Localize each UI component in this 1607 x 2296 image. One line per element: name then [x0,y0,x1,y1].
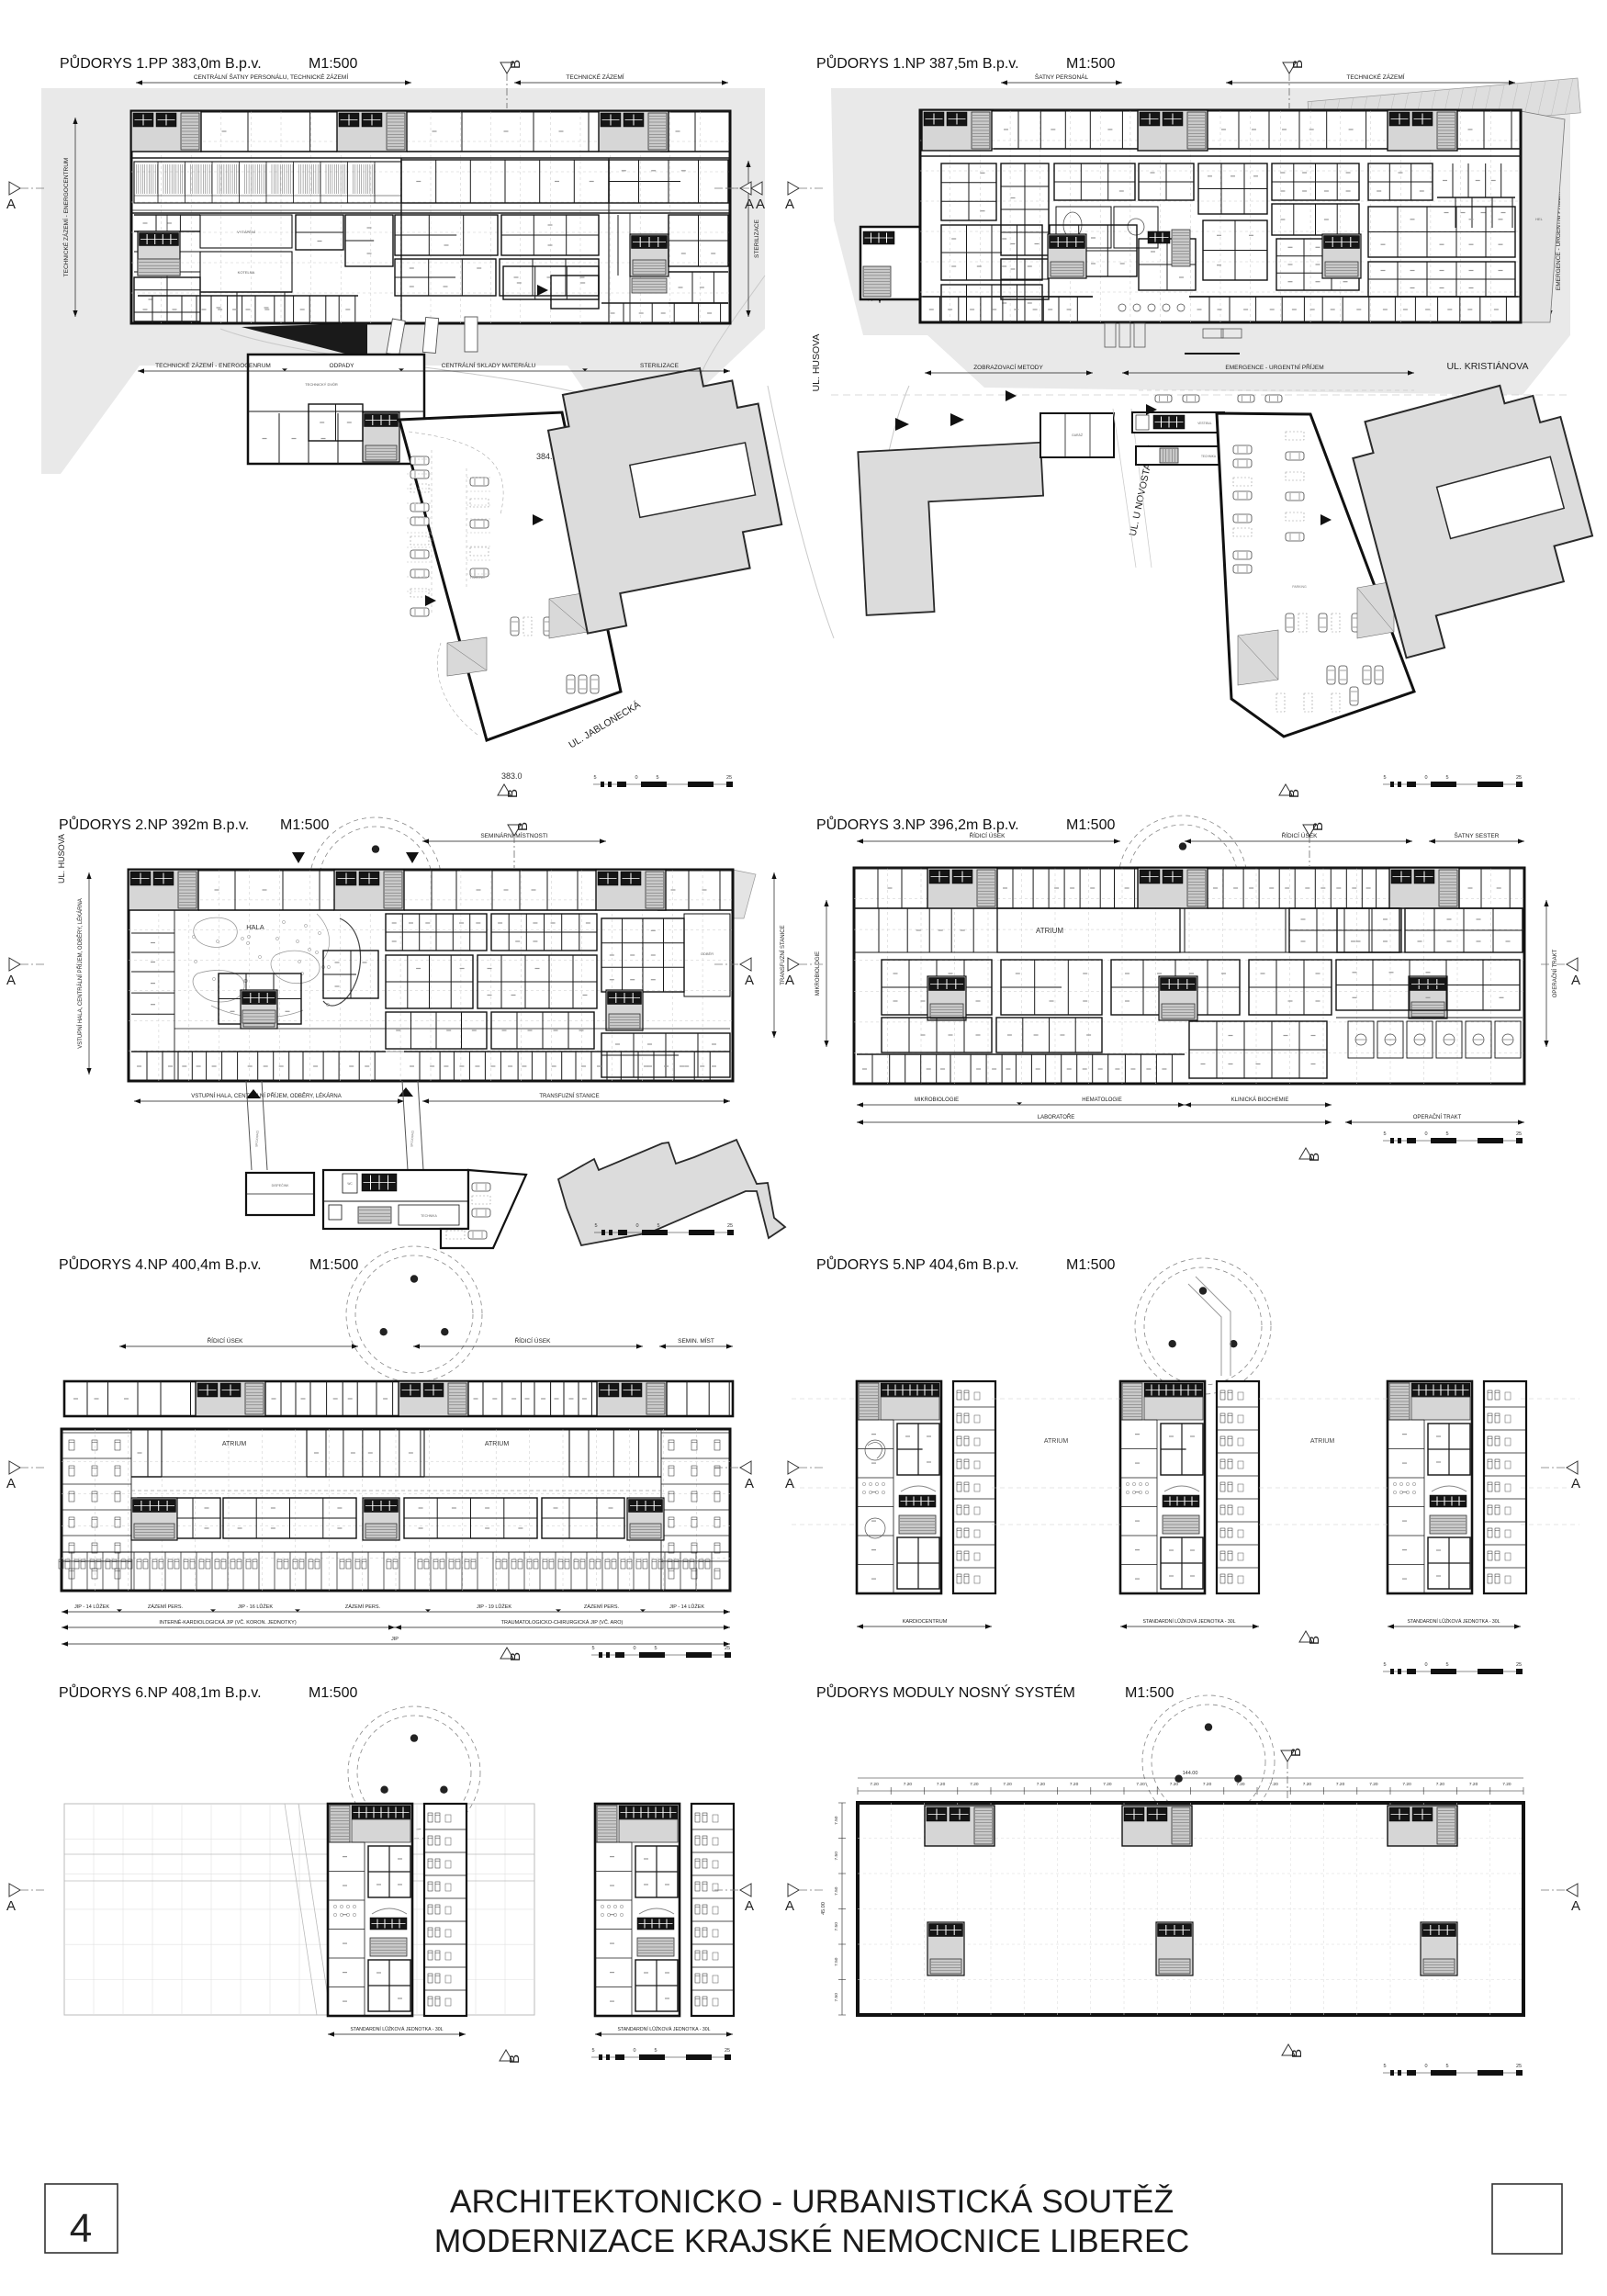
svg-text:0: 0 [1424,2064,1427,2069]
svg-text:ZÁZEMÍ PERS.: ZÁZEMÍ PERS. [148,1604,184,1610]
svg-text:JIP - 16 LŮŽEK: JIP - 16 LŮŽEK [238,1603,273,1610]
svg-text:JIP - 19 LŮŽEK: JIP - 19 LŮŽEK [477,1603,511,1610]
svg-text:7.20: 7.20 [1236,1782,1245,1787]
svg-text:ATRIUM: ATRIUM [1036,927,1063,935]
svg-text:INTERNĚ-KARDIOLOGICKÁ JIP (VČ.: INTERNĚ-KARDIOLOGICKÁ JIP (VČ. KORON. JE… [159,1618,297,1626]
svg-text:EMERGENCE - URGENTNÍ PŘÍJEM: EMERGENCE - URGENTNÍ PŘÍJEM [1225,363,1323,371]
svg-text:HEMATOLOGIE: HEMATOLOGIE [1082,1097,1121,1103]
svg-text:7.20: 7.20 [1303,1782,1312,1787]
svg-text:A: A [6,1476,16,1491]
svg-text:ŠATNY SESTER: ŠATNY SESTER [1455,831,1500,839]
svg-text:B: B [1289,2049,1305,2058]
svg-text:M1:500: M1:500 [309,1685,357,1701]
svg-text:7.20: 7.20 [970,1782,979,1787]
svg-text:PŮDORYS 1.NP 387,5m B.p.v.: PŮDORYS 1.NP 387,5m B.p.v. [816,54,1019,72]
svg-text:A: A [745,1898,754,1914]
svg-text:M1:500: M1:500 [1125,1685,1174,1701]
svg-text:4: 4 [70,2206,92,2251]
svg-text:ZÁZEMÍ PERS.: ZÁZEMÍ PERS. [584,1604,620,1610]
svg-text:7.20: 7.20 [1170,1782,1179,1787]
svg-text:A: A [785,1476,794,1491]
svg-text:A: A [1571,1898,1580,1914]
svg-text:ZÁZEMÍ PERS.: ZÁZEMÍ PERS. [345,1604,381,1610]
svg-text:UL. HUSOVA: UL. HUSOVA [57,834,66,884]
svg-text:TRANSFUZNÍ STANICE: TRANSFUZNÍ STANICE [539,1093,599,1099]
svg-text:ŠATNY PERSONÁL: ŠATNY PERSONÁL [1035,73,1089,81]
svg-text:VESTIBUL: VESTIBUL [1197,422,1212,425]
svg-text:PARKING: PARKING [1292,585,1307,589]
svg-text:VYTÁPĚNÍ: VYTÁPĚNÍ [237,230,256,234]
svg-text:25: 25 [725,1646,730,1651]
svg-text:7.50: 7.50 [834,1886,839,1896]
svg-text:B: B [508,60,523,69]
svg-text:ŘÍDICÍ ÚSEK: ŘÍDICÍ ÚSEK [969,831,1006,839]
svg-text:5: 5 [591,1646,594,1651]
svg-text:7.20: 7.20 [904,1782,913,1787]
svg-text:TECHNICKÉ ZÁZEMÍ - ENERGOCENTR: TECHNICKÉ ZÁZEMÍ - ENERGOCENTRUM [62,158,70,277]
svg-text:5: 5 [1383,2064,1386,2069]
svg-text:TECHNIKA: TECHNIKA [421,1214,437,1218]
svg-text:TECHNIKA: TECHNIKA [1201,455,1217,458]
svg-text:TRAUMATOLOGICKO-CHIRURGICKÁ JI: TRAUMATOLOGICKO-CHIRURGICKÁ JIP (VČ. ARO… [501,1619,624,1626]
svg-text:45.00: 45.00 [821,1902,826,1915]
svg-text:ŘÍDICÍ ÚSEK: ŘÍDICÍ ÚSEK [1281,831,1318,839]
svg-text:B: B [1310,822,1326,831]
svg-text:25: 25 [1516,1662,1522,1668]
svg-text:JIP: JIP [391,1637,399,1642]
svg-text:7.50: 7.50 [834,1851,839,1861]
svg-text:SEMIN. MÍST: SEMIN. MÍST [678,1336,714,1345]
svg-text:STANDARDNÍ LŮŽKOVÁ JEDNOTKA -: STANDARDNÍ LŮŽKOVÁ JEDNOTKA - 30L [617,2025,710,2032]
svg-text:ATRIUM: ATRIUM [1310,1438,1334,1445]
svg-text:PŮDORYS 5.NP 404,6m B.p.v.: PŮDORYS 5.NP 404,6m B.p.v. [816,1255,1019,1273]
svg-text:ODPADY: ODPADY [330,363,355,369]
svg-text:5: 5 [1445,1662,1448,1668]
svg-text:ATRIUM: ATRIUM [485,1441,509,1447]
svg-text:PŮDORYS 6.NP 408,1m B.p.v.: PŮDORYS 6.NP 408,1m B.p.v. [59,1683,262,1701]
svg-text:A: A [6,973,16,988]
svg-text:KOTELNA: KOTELNA [238,270,255,275]
svg-text:MIKROBIOLOGIE: MIKROBIOLOGIE [915,1097,959,1103]
svg-text:A: A [745,1476,754,1491]
svg-text:A: A [6,1898,16,1914]
svg-text:PŮDORYS 3.NP 396,2m B.p.v.: PŮDORYS 3.NP 396,2m B.p.v. [816,816,1019,833]
svg-text:7.20: 7.20 [1037,1782,1046,1787]
svg-text:LABORATOŘE: LABORATOŘE [1038,1113,1074,1120]
svg-text:M1:500: M1:500 [1066,817,1115,833]
svg-text:7.50: 7.50 [834,1957,839,1966]
svg-text:0: 0 [1424,775,1427,781]
svg-text:A: A [6,197,16,212]
svg-text:CENTRÁLNÍ SKLADY MATERIÁLU: CENTRÁLNÍ SKLADY MATERIÁLU [442,361,536,369]
svg-text:25: 25 [1516,775,1522,781]
svg-text:7.20: 7.20 [1269,1782,1278,1787]
svg-text:M1:500: M1:500 [309,1257,358,1273]
svg-text:B: B [1290,60,1306,69]
svg-text:5: 5 [657,1223,659,1229]
svg-text:25: 25 [727,1223,733,1229]
svg-text:B: B [1307,1153,1322,1162]
svg-text:5: 5 [1445,775,1448,781]
svg-text:TECHNICKÉ ZÁZEMÍ: TECHNICKÉ ZÁZEMÍ [566,73,624,81]
svg-text:DISPEČINK: DISPEČINK [272,1183,290,1187]
svg-text:0: 0 [635,775,637,781]
svg-text:0: 0 [635,1223,638,1229]
svg-text:A: A [1571,1476,1580,1491]
svg-text:M1:500: M1:500 [1066,1257,1115,1273]
svg-text:7.20: 7.20 [1070,1782,1079,1787]
svg-text:M1:500: M1:500 [280,817,329,833]
svg-text:25: 25 [1516,1131,1522,1137]
svg-text:5: 5 [593,775,596,781]
svg-text:KARDIOCENTRUM: KARDIOCENTRUM [903,1619,948,1625]
svg-text:7.20: 7.20 [1369,1782,1378,1787]
svg-text:A: A [745,197,754,212]
svg-text:STERILIZACE: STERILIZACE [640,363,680,369]
svg-text:STANDARDNÍ LŮŽKOVÁ JEDNOTKA -: STANDARDNÍ LŮŽKOVÁ JEDNOTKA - 30L [350,2025,443,2032]
svg-text:A: A [1571,973,1580,988]
svg-text:ŘÍDICÍ ÚSEK: ŘÍDICÍ ÚSEK [207,1336,243,1345]
svg-text:5: 5 [1445,2064,1448,2069]
svg-text:B: B [508,1652,523,1661]
svg-text:TECHNICKÝ DVŮR: TECHNICKÝ DVŮR [305,382,338,387]
svg-text:PARKING: PARKING [470,576,485,580]
svg-text:144.00: 144.00 [1183,1771,1198,1776]
svg-text:M1:500: M1:500 [1066,56,1115,72]
svg-text:7.20: 7.20 [1136,1782,1145,1787]
svg-text:7.50: 7.50 [834,1922,839,1931]
svg-text:5: 5 [591,2048,594,2054]
svg-text:5: 5 [1383,1131,1386,1137]
svg-text:ODBĚR: ODBĚR [701,951,714,956]
svg-text:B: B [515,822,531,831]
svg-text:PŮDORYS 1.PP 383,0m B.p.v.: PŮDORYS 1.PP 383,0m B.p.v. [60,54,262,72]
svg-text:M1:500: M1:500 [309,56,357,72]
svg-text:25: 25 [1516,2064,1522,2069]
svg-text:UL. HUSOVA: UL. HUSOVA [811,334,822,392]
svg-text:STANDARDNÍ LŮŽKOVÁ JEDNOTKA -: STANDARDNÍ LŮŽKOVÁ JEDNOTKA - 30L [1407,1617,1500,1625]
svg-text:WC: WC [347,1182,353,1186]
svg-text:B: B [1307,1636,1322,1645]
svg-text:25: 25 [725,2048,730,2054]
svg-text:MIKROBIOLOGIE: MIKROBIOLOGIE [815,951,821,996]
svg-text:0: 0 [633,1646,635,1651]
svg-text:ŘÍDICÍ ÚSEK: ŘÍDICÍ ÚSEK [514,1336,551,1345]
svg-text:A: A [785,1898,794,1914]
svg-text:7.20: 7.20 [1402,1782,1411,1787]
svg-text:OPERAČNÍ TRAKT: OPERAČNÍ TRAKT [1552,949,1558,997]
svg-text:STANDARDNÍ LŮŽKOVÁ JEDNOTKA -: STANDARDNÍ LŮŽKOVÁ JEDNOTKA - 30L [1142,1617,1235,1625]
svg-text:ZOBRAZOVACÍ METODY: ZOBRAZOVACÍ METODY [973,363,1043,371]
svg-text:A: A [785,973,794,988]
svg-text:TECHNICKÉ ZÁZEMÍ - ENERGOCENRU: TECHNICKÉ ZÁZEMÍ - ENERGOCENRUM [155,361,271,369]
svg-text:5: 5 [656,775,658,781]
svg-text:B: B [1288,1748,1304,1757]
svg-text:7.20: 7.20 [1436,1782,1445,1787]
svg-text:PŮDORYS 2.NP 392m B.p.v.: PŮDORYS 2.NP 392m B.p.v. [59,816,249,833]
svg-text:KLINICKÁ BIOCHEMIE: KLINICKÁ BIOCHEMIE [1231,1097,1289,1103]
svg-text:JIP - 14 LŮŽEK: JIP - 14 LŮŽEK [74,1603,109,1610]
svg-text:25: 25 [726,775,732,781]
svg-text:383.0: 383.0 [501,771,523,781]
svg-text:PŮDORYS 4.NP 400,4m B.p.v.: PŮDORYS 4.NP 400,4m B.p.v. [59,1255,262,1273]
svg-text:7.50: 7.50 [834,1993,839,2002]
svg-text:HEL: HEL [1535,217,1544,221]
svg-text:5: 5 [654,2048,657,2054]
svg-text:OPERAČNÍ TRAKT: OPERAČNÍ TRAKT [1413,1114,1462,1120]
svg-text:A: A [785,197,794,212]
svg-text:VSTUPNÍ HALA, CENTRÁLNÍ PŘÍJEM: VSTUPNÍ HALA, CENTRÁLNÍ PŘÍJEM, ODBĚRY, … [191,1092,342,1099]
svg-text:0: 0 [633,2048,635,2054]
svg-text:5: 5 [1383,1662,1386,1668]
svg-text:7.20: 7.20 [1336,1782,1345,1787]
svg-text:B: B [505,789,521,798]
svg-text:PŮDORYS MODULY NOSNÝ SYSTÉM: PŮDORYS MODULY NOSNÝ SYSTÉM [816,1683,1075,1701]
svg-text:TECHNICKÉ ZÁZEMÍ: TECHNICKÉ ZÁZEMÍ [1346,73,1404,81]
svg-text:5: 5 [654,1646,657,1651]
svg-text:B: B [507,2054,523,2064]
svg-text:VSTUPNÍ HALA, CENTRÁLNÍ PŘÍJEM: VSTUPNÍ HALA, CENTRÁLNÍ PŘÍJEM, ODBĚRY, … [76,898,84,1049]
svg-text:STERILIZACE: STERILIZACE [754,219,760,258]
svg-text:7.20: 7.20 [1203,1782,1212,1787]
svg-text:7.20: 7.20 [937,1782,946,1787]
svg-text:7.20: 7.20 [1003,1782,1012,1787]
svg-text:7.20: 7.20 [1469,1782,1478,1787]
svg-text:5: 5 [1383,775,1386,781]
svg-text:7.20: 7.20 [870,1782,879,1787]
svg-text:ATRIUM: ATRIUM [1044,1438,1068,1445]
svg-text:ARCHITEKTONICKO - URBANISTICKÁ: ARCHITEKTONICKO - URBANISTICKÁ SOUTĚŽ [450,2183,1174,2220]
svg-text:7.50: 7.50 [834,1816,839,1825]
svg-text:A: A [756,197,765,212]
svg-text:GARÁŽ: GARÁŽ [1072,433,1084,437]
svg-text:5: 5 [1445,1131,1448,1137]
svg-text:JIP - 14 LŮŽEK: JIP - 14 LŮŽEK [669,1603,704,1610]
svg-text:UL. KRISTIÁNOVA: UL. KRISTIÁNOVA [1446,360,1528,372]
svg-text:0: 0 [1424,1131,1427,1137]
svg-text:B: B [1287,789,1302,798]
svg-text:ATRIUM: ATRIUM [222,1441,246,1447]
svg-text:HALA: HALA [246,923,264,931]
svg-text:7.20: 7.20 [1502,1782,1511,1787]
svg-text:5: 5 [594,1223,597,1229]
svg-text:7.20: 7.20 [1103,1782,1112,1787]
svg-text:A: A [745,973,754,988]
svg-text:CENTRÁLNÍ ŠATNY PERSONÁLU, TEC: CENTRÁLNÍ ŠATNY PERSONÁLU, TECHNICKÉ ZÁZ… [194,73,349,81]
svg-text:MODERNIZACE KRAJSKÉ NEMOCNICE: MODERNIZACE KRAJSKÉ NEMOCNICE LIBEREC [434,2223,1190,2259]
svg-text:0: 0 [1424,1662,1427,1668]
